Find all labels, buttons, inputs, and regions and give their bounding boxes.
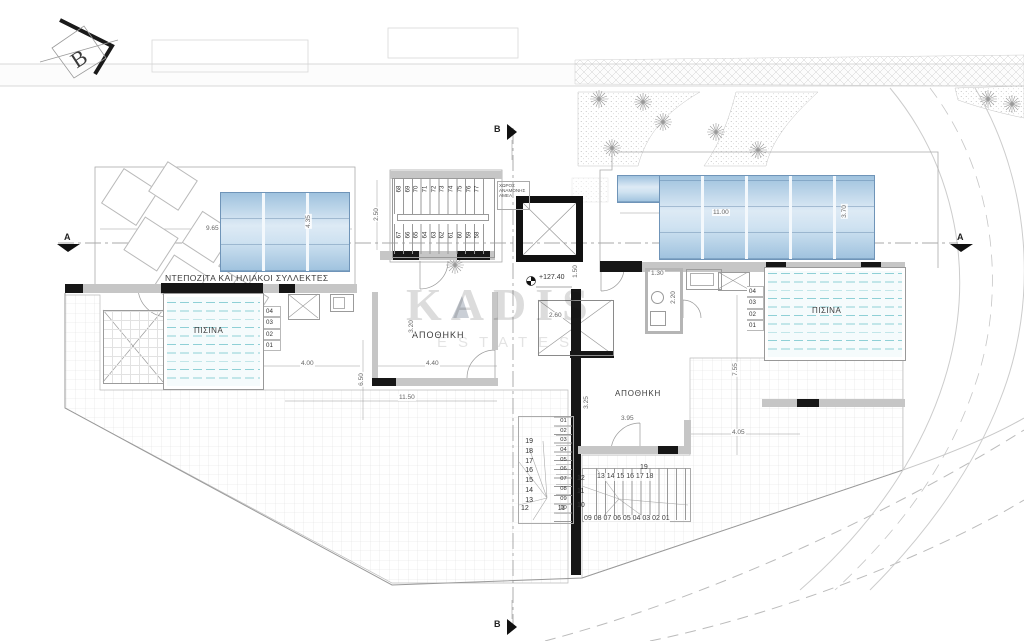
stair-numbers-upper: 68697071727374757677 bbox=[395, 183, 482, 195]
wc-basin bbox=[651, 291, 664, 304]
stair-step-number: 12 bbox=[521, 505, 529, 512]
stair-handrail bbox=[397, 214, 489, 221]
wall bbox=[762, 399, 905, 407]
skylight-left bbox=[103, 310, 165, 384]
sw-stair-bottom-numbers: 1211 bbox=[521, 505, 565, 512]
dim-deck-left-w: 4.00 bbox=[300, 360, 315, 367]
pool-left bbox=[167, 297, 260, 386]
wall-black bbox=[279, 284, 295, 293]
section-triangle-top bbox=[507, 124, 517, 140]
se-stair-bottom-numbers: 09 08 07 06 05 04 03 02 01 bbox=[584, 515, 670, 523]
stair-step-number: 04 bbox=[556, 446, 571, 456]
section-label-left: A bbox=[64, 232, 71, 242]
pool-step-number: 02 bbox=[264, 329, 281, 340]
stair-step-number: 16 bbox=[519, 466, 533, 476]
planting-bed bbox=[578, 92, 700, 166]
amea-label: ΧΩΡΟΣ ΑΝΑΜΟΝΗΣ ΑΜΕΑ bbox=[499, 183, 529, 198]
stair-step-number: 15 bbox=[519, 476, 533, 486]
stair-numbers-lower: 67666564636261605958 bbox=[395, 229, 482, 241]
dim-storage-right-w: 3.95 bbox=[620, 415, 635, 422]
amea-waiting-area: ΧΩΡΟΣ ΑΝΑΜΟΝΗΣ ΑΜΕΑ bbox=[497, 181, 530, 210]
roof-plan-drawing: B bbox=[0, 0, 1024, 641]
solar-collectors-right-step bbox=[617, 175, 661, 203]
section-label-right: A bbox=[957, 232, 964, 242]
pool-step-number: 03 bbox=[264, 317, 281, 328]
stair-step-number: 17 bbox=[519, 457, 533, 467]
watermark-sub: ESTATES bbox=[437, 334, 580, 351]
pool-left-label: ΠΙΣΙΝΑ bbox=[194, 327, 223, 336]
planting-bed bbox=[704, 92, 818, 166]
watermark-brand: KADIS bbox=[406, 278, 597, 331]
wall bbox=[684, 420, 691, 454]
dim-storage-right-h: 3.25 bbox=[583, 395, 590, 410]
folding-table bbox=[718, 272, 750, 291]
se-stair-left-numbers: 121110 bbox=[577, 472, 585, 512]
sink-basin bbox=[333, 297, 345, 309]
stair-step-number: 19 bbox=[519, 437, 533, 447]
dim-bottom-w: 11.50 bbox=[398, 394, 416, 401]
stair-step-number: 58 bbox=[472, 231, 484, 240]
stair-step-number: 12 bbox=[577, 472, 585, 485]
stair-step-number: 14 bbox=[519, 486, 533, 496]
wall-black bbox=[600, 261, 642, 272]
dim-storage-left-w: 4.40 bbox=[425, 360, 440, 367]
solar-collectors-left bbox=[220, 192, 350, 272]
pool-step-number: 01 bbox=[747, 320, 764, 331]
pool-step-number: 01 bbox=[264, 340, 281, 351]
se-stair-top-end-number: 19 bbox=[640, 464, 648, 472]
dim-wc-h: 2.20 bbox=[670, 290, 677, 305]
door-arc bbox=[467, 350, 495, 378]
sw-stair-right-numbers: 01020304050607080910 bbox=[556, 417, 571, 514]
wall-black bbox=[161, 283, 263, 293]
pool-step-number: 03 bbox=[747, 297, 764, 308]
dim-wc-w: 1.30 bbox=[650, 270, 665, 277]
wall-black bbox=[658, 446, 678, 454]
stair-step-number: 11 bbox=[577, 485, 585, 498]
section-label-top: B bbox=[494, 124, 501, 134]
wc-toilet bbox=[650, 311, 666, 326]
wall-black bbox=[65, 284, 83, 293]
dim-terrace-w: 4.05 bbox=[731, 429, 746, 436]
dim-elevator: 1.50 bbox=[572, 264, 579, 279]
door-arc bbox=[683, 300, 701, 318]
section-triangle-bottom bbox=[507, 619, 517, 635]
pool-step-number: 04 bbox=[264, 306, 281, 317]
section-triangle-left bbox=[57, 244, 80, 252]
stair-step-number: 11 bbox=[558, 505, 565, 512]
sw-stair-left-numbers: 19181716151413 bbox=[519, 437, 533, 506]
pool-left-steps: 04030201 bbox=[264, 306, 281, 351]
solar-collectors-label: ΝΤΕΠΟΖΙΤΑ ΚΑΙ ΗΛΙΑΚΟΙ ΣΥΛΛΕΚΤΕΣ bbox=[165, 274, 329, 283]
stair-step-number: 03 bbox=[556, 436, 571, 446]
stair-step-number: 18 bbox=[519, 447, 533, 457]
wall-black bbox=[797, 399, 819, 407]
stair-step-number: 10 bbox=[577, 499, 585, 512]
stair-step-number: 09 bbox=[556, 495, 571, 505]
wall bbox=[372, 292, 378, 380]
skylight-mid bbox=[288, 294, 320, 320]
dim-solar-right-h: 3.70 bbox=[841, 204, 848, 219]
dim-solar-left-w: 9.65 bbox=[205, 225, 220, 232]
stair-step-number: 05 bbox=[556, 456, 571, 466]
pool-step-number: 04 bbox=[747, 286, 764, 297]
wall-black bbox=[372, 378, 396, 386]
kitchen-sink bbox=[690, 273, 714, 286]
pool-right-steps: 04030201 bbox=[747, 286, 764, 331]
stair-step-number: 06 bbox=[556, 465, 571, 475]
stair-step-number: 77 bbox=[472, 185, 484, 194]
stair-step-number: 02 bbox=[556, 427, 571, 437]
storage-right-label: ΑΠΟΘΗΚΗ bbox=[615, 390, 661, 399]
dim-deck-left-h: 6.50 bbox=[358, 372, 365, 387]
pool-step-number: 02 bbox=[747, 309, 764, 320]
dim-stair-w: 2.50 bbox=[373, 207, 380, 222]
pool-right-label: ΠΙΣΙΝΑ bbox=[812, 307, 841, 316]
stair-step-number: 01 bbox=[556, 417, 571, 427]
hatched-walkway bbox=[575, 55, 1024, 86]
section-triangle-right bbox=[950, 244, 973, 252]
section-label-bottom: B bbox=[494, 619, 501, 629]
se-stair-top-numbers: 13 14 15 16 17 18 bbox=[597, 473, 653, 481]
stair-step-number: 07 bbox=[556, 475, 571, 485]
dim-solar-left-h: 4.35 bbox=[305, 214, 312, 229]
stair-step-number: 08 bbox=[556, 485, 571, 495]
dim-terrace-h: 7.55 bbox=[732, 362, 739, 377]
dim-solar-right-w: 11.00 bbox=[712, 209, 730, 216]
